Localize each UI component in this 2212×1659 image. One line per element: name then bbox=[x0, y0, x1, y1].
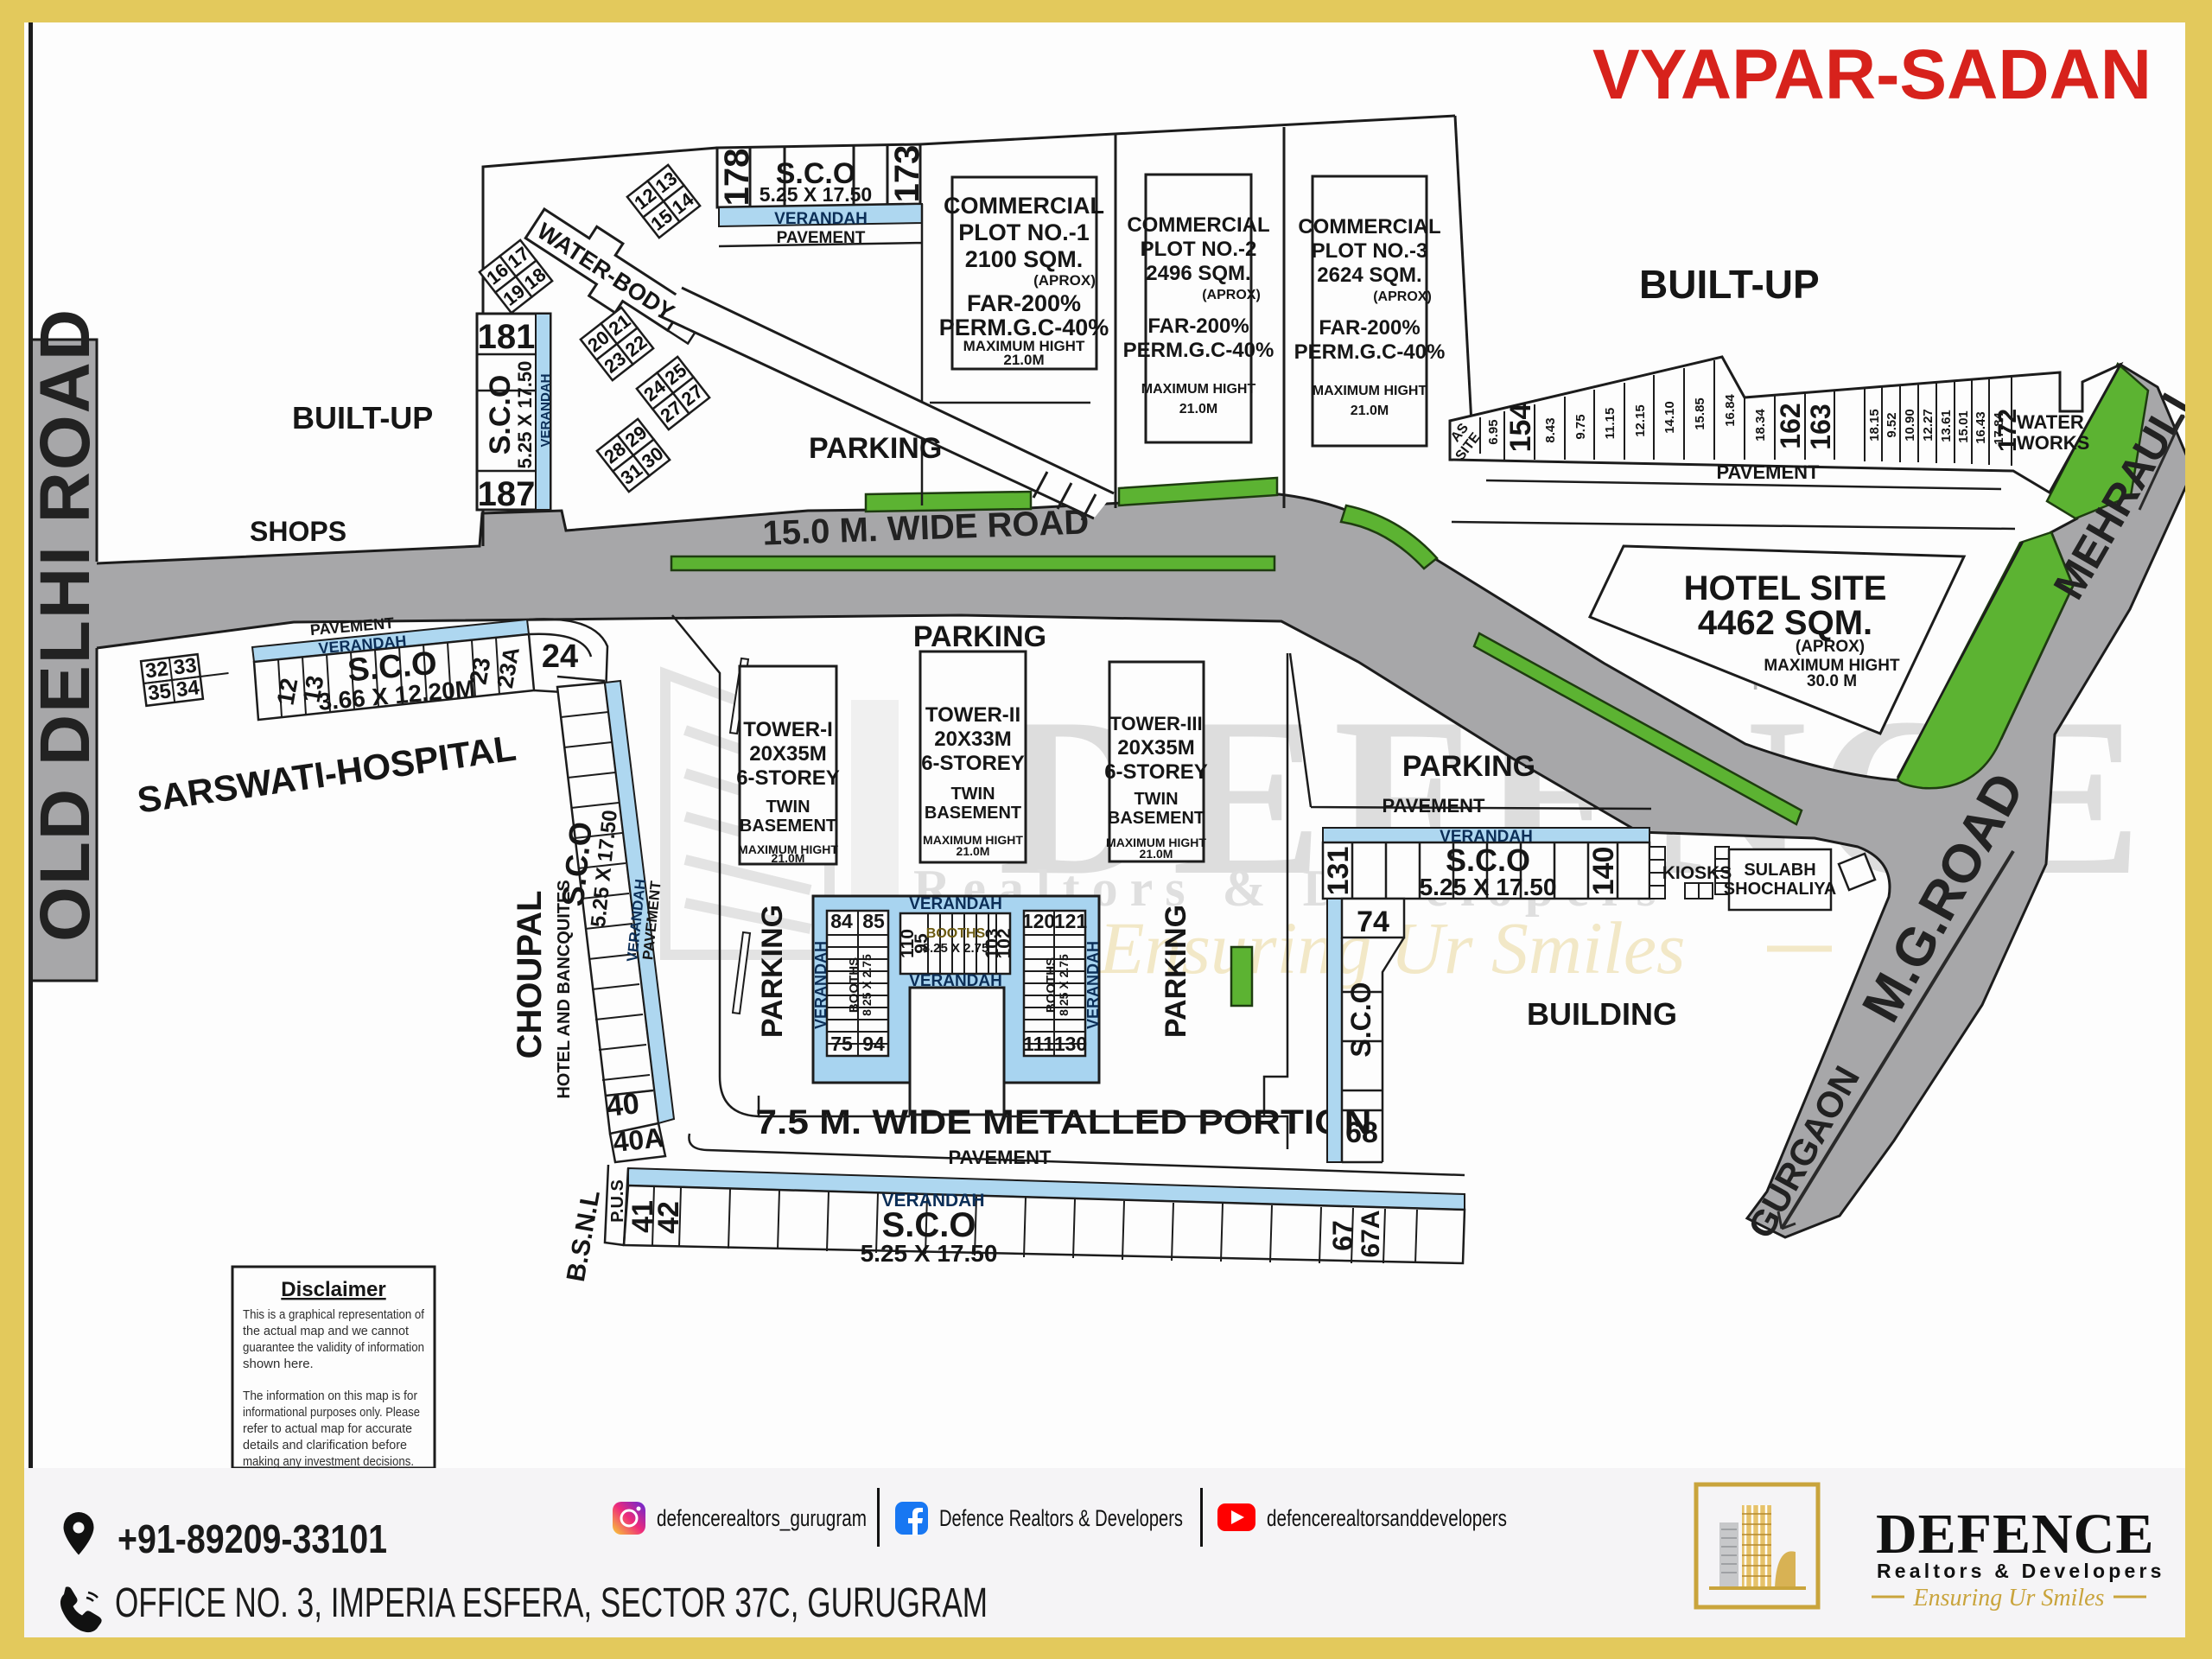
svg-text:21.0M: 21.0M bbox=[1003, 352, 1044, 368]
svg-text:Defence Realtors & Developers: Defence Realtors & Developers bbox=[939, 1505, 1183, 1531]
svg-text:shown here.: shown here. bbox=[243, 1357, 314, 1371]
svg-text:102: 102 bbox=[995, 928, 1014, 958]
svg-text:18.34: 18.34 bbox=[1753, 409, 1768, 442]
svg-text:PARKING: PARKING bbox=[756, 905, 789, 1038]
svg-text:14.10: 14.10 bbox=[1662, 401, 1677, 434]
svg-text:BASEMENT: BASEMENT bbox=[740, 817, 836, 836]
svg-text:(APROX): (APROX) bbox=[1796, 638, 1865, 656]
svg-text:18.15: 18.15 bbox=[1867, 409, 1882, 442]
svg-text:SHOPS: SHOPS bbox=[250, 516, 346, 547]
svg-text:154: 154 bbox=[1504, 404, 1537, 453]
svg-text:140: 140 bbox=[1587, 847, 1620, 896]
svg-text:COMMERCIAL: COMMERCIAL bbox=[944, 193, 1104, 219]
svg-text:PAVEMENT: PAVEMENT bbox=[1382, 795, 1486, 817]
svg-text:12.15: 12.15 bbox=[1633, 404, 1648, 437]
svg-text:40A: 40A bbox=[612, 1122, 665, 1158]
svg-text:162: 162 bbox=[1775, 403, 1806, 448]
svg-text:VERANDAH: VERANDAH bbox=[774, 210, 868, 228]
svg-text:PERM.G.C-40%: PERM.G.C-40% bbox=[939, 315, 1109, 340]
svg-text:120: 120 bbox=[1022, 910, 1055, 932]
svg-text:34: 34 bbox=[175, 676, 200, 702]
svg-text:5.25 X 17.50: 5.25 X 17.50 bbox=[1420, 874, 1557, 900]
svg-text:187: 187 bbox=[478, 475, 536, 513]
svg-text:TWIN: TWIN bbox=[1134, 790, 1178, 809]
svg-text:VERANDAH: VERANDAH bbox=[538, 373, 553, 447]
svg-text:informational purposes only. P: informational purposes only. Please bbox=[243, 1405, 420, 1420]
svg-text:FAR-200%: FAR-200% bbox=[967, 290, 1081, 316]
svg-text:121: 121 bbox=[1054, 910, 1088, 932]
svg-text:6.95: 6.95 bbox=[1486, 419, 1501, 444]
svg-text:94: 94 bbox=[862, 1033, 885, 1055]
svg-text:5.25 X 17.50: 5.25 X 17.50 bbox=[514, 361, 536, 469]
svg-text:FAR-200%: FAR-200% bbox=[1319, 316, 1420, 340]
svg-text:defencerealtorsanddevelopers: defencerealtorsanddevelopers bbox=[1267, 1505, 1507, 1531]
svg-text:TOWER-II: TOWER-II bbox=[925, 703, 1020, 727]
svg-text:PAVEMENT: PAVEMENT bbox=[1717, 461, 1821, 483]
svg-text:The information on this map is: The information on this map is for bbox=[243, 1389, 417, 1403]
svg-text:BUILDING: BUILDING bbox=[1527, 996, 1677, 1032]
svg-text:2100 SQM.: 2100 SQM. bbox=[965, 246, 1084, 272]
svg-text:Realtors & Developers: Realtors & Developers bbox=[1877, 1560, 2165, 1582]
svg-text:21.0M: 21.0M bbox=[1140, 847, 1173, 861]
svg-text:SHOCHALIYA: SHOCHALIYA bbox=[1724, 880, 1836, 899]
svg-text:8.43: 8.43 bbox=[1543, 417, 1558, 442]
svg-text:TWIN: TWIN bbox=[766, 798, 810, 817]
svg-text:the actual map and we cannot: the actual map and we cannot bbox=[243, 1324, 410, 1338]
svg-text:PAVEMENT: PAVEMENT bbox=[777, 229, 866, 247]
svg-text:PLOT NO.-1: PLOT NO.-1 bbox=[958, 219, 1090, 245]
svg-text:DEFENCE: DEFENCE bbox=[1876, 1503, 2154, 1566]
svg-text:BASEMENT: BASEMENT bbox=[1108, 809, 1205, 828]
svg-text:S.C.O: S.C.O bbox=[882, 1206, 976, 1244]
svg-text:PAVEMENT: PAVEMENT bbox=[949, 1147, 1052, 1168]
svg-text:CHOUPAL: CHOUPAL bbox=[511, 891, 549, 1059]
svg-text:35: 35 bbox=[147, 679, 173, 705]
svg-text:HOTEL SITE: HOTEL SITE bbox=[1684, 569, 1887, 607]
svg-text:10.90: 10.90 bbox=[1903, 409, 1917, 442]
svg-text:COMMERCIAL: COMMERCIAL bbox=[1298, 215, 1440, 238]
svg-text:15.85: 15.85 bbox=[1693, 397, 1707, 430]
svg-text:21.0M: 21.0M bbox=[1179, 402, 1217, 416]
svg-text:6-STOREY: 6-STOREY bbox=[1104, 760, 1208, 784]
svg-text:178: 178 bbox=[718, 149, 756, 207]
svg-text:KIOSKS: KIOSKS bbox=[1662, 863, 1732, 883]
svg-text:67: 67 bbox=[1327, 1220, 1358, 1251]
svg-text:6-STOREY: 6-STOREY bbox=[736, 766, 840, 790]
svg-text:13.61: 13.61 bbox=[1939, 410, 1954, 442]
svg-text:details and clarification befo: details and clarification before bbox=[243, 1438, 407, 1452]
svg-text:111: 111 bbox=[1023, 1033, 1054, 1055]
svg-text:20X35M: 20X35M bbox=[749, 742, 826, 766]
svg-text:15.01: 15.01 bbox=[1956, 410, 1971, 443]
svg-text:TOWER-I: TOWER-I bbox=[743, 718, 833, 741]
svg-text:WATER: WATER bbox=[2017, 411, 2084, 433]
svg-text:5.25 X 17.50: 5.25 X 17.50 bbox=[760, 183, 872, 206]
svg-text:PERM.G.C-40%: PERM.G.C-40% bbox=[1294, 340, 1446, 364]
svg-text:8.25 X 2.75: 8.25 X 2.75 bbox=[860, 954, 874, 1016]
svg-text:85: 85 bbox=[862, 910, 885, 932]
svg-text:12: 12 bbox=[271, 676, 302, 707]
svg-text:WORKS: WORKS bbox=[2017, 432, 2089, 454]
svg-text:74: 74 bbox=[1357, 906, 1389, 938]
svg-text:FAR-200%: FAR-200% bbox=[1147, 315, 1249, 338]
svg-text:Disclaimer: Disclaimer bbox=[281, 1278, 385, 1301]
svg-text:163: 163 bbox=[1805, 404, 1836, 449]
svg-text:MAXIMUM HIGHT: MAXIMUM HIGHT bbox=[1313, 384, 1427, 398]
svg-text:16.84: 16.84 bbox=[1723, 394, 1738, 427]
svg-text:TOWER-III: TOWER-III bbox=[1109, 713, 1202, 734]
svg-text:(APROX): (APROX) bbox=[1033, 272, 1096, 289]
svg-text:75: 75 bbox=[830, 1033, 853, 1055]
svg-text:Ensuring Ur Smiles: Ensuring Ur Smiles bbox=[1913, 1585, 2105, 1611]
svg-text:20X35M: 20X35M bbox=[1117, 736, 1194, 760]
svg-text:PARKING: PARKING bbox=[1160, 905, 1192, 1038]
svg-text:COMMERCIAL: COMMERCIAL bbox=[1127, 213, 1269, 237]
svg-text:VERANDAH: VERANDAH bbox=[1084, 941, 1102, 1029]
svg-text:BUILT-UP: BUILT-UP bbox=[292, 400, 433, 435]
svg-text:BUILT-UP: BUILT-UP bbox=[1639, 262, 1820, 307]
svg-text:VERANDAH: VERANDAH bbox=[909, 972, 1002, 990]
svg-text:67A: 67A bbox=[1357, 1210, 1385, 1257]
svg-text:VYAPAR-SADAN: VYAPAR-SADAN bbox=[1592, 35, 2152, 114]
svg-text:PLOT NO.-3: PLOT NO.-3 bbox=[1312, 239, 1428, 263]
svg-text:24: 24 bbox=[542, 639, 578, 675]
svg-text:6-STOREY: 6-STOREY bbox=[921, 752, 1025, 775]
svg-text:S.C.O: S.C.O bbox=[1345, 982, 1376, 1057]
svg-text:2624 SQM.: 2624 SQM. bbox=[1317, 264, 1421, 287]
svg-text:P.U.S: P.U.S bbox=[608, 1179, 627, 1223]
svg-text:This is a graphical representa: This is a graphical representation of bbox=[243, 1307, 425, 1322]
svg-text:95: 95 bbox=[912, 933, 931, 954]
svg-text:S.C.O: S.C.O bbox=[484, 375, 517, 455]
svg-text:making any investment decision: making any investment decisions. bbox=[243, 1454, 414, 1469]
svg-text:21.0M: 21.0M bbox=[1351, 404, 1389, 418]
svg-text:11.15: 11.15 bbox=[1603, 408, 1618, 440]
svg-text:OLD DELHI ROAD: OLD DELHI ROAD bbox=[26, 308, 105, 942]
svg-text:173: 173 bbox=[888, 145, 926, 203]
svg-text:8.25 X 2.75: 8.25 X 2.75 bbox=[1057, 954, 1071, 1016]
svg-text:12.27: 12.27 bbox=[1921, 409, 1935, 442]
svg-text:42: 42 bbox=[652, 1201, 685, 1234]
svg-text:(APROX): (APROX) bbox=[1202, 288, 1261, 302]
svg-text:21.0M: 21.0M bbox=[772, 851, 805, 865]
svg-text:2496 SQM.: 2496 SQM. bbox=[1146, 262, 1250, 285]
svg-text:9.52: 9.52 bbox=[1885, 412, 1899, 437]
svg-text:131: 131 bbox=[1322, 847, 1355, 896]
svg-text:HOTEL AND BANCQUITES: HOTEL AND BANCQUITES bbox=[555, 880, 574, 1098]
svg-text:130: 130 bbox=[1054, 1033, 1087, 1055]
svg-text:PARKING: PARKING bbox=[1402, 750, 1535, 783]
svg-text:OFFICE NO. 3, IMPERIA ESFERA,: OFFICE NO. 3, IMPERIA ESFERA, SECTOR 37C… bbox=[115, 1580, 988, 1626]
svg-text:40: 40 bbox=[605, 1087, 641, 1123]
svg-text:MAXIMUM HIGHT: MAXIMUM HIGHT bbox=[1141, 382, 1256, 397]
svg-text:VERANDAH: VERANDAH bbox=[909, 895, 1002, 913]
svg-text:16.43: 16.43 bbox=[1974, 411, 1988, 444]
svg-text:5.25 X 17.50: 5.25 X 17.50 bbox=[861, 1240, 998, 1267]
svg-text:PARKING: PARKING bbox=[809, 432, 942, 465]
svg-text:30.0 M: 30.0 M bbox=[1807, 672, 1857, 690]
svg-text:guarantee the validity of info: guarantee the validity of information bbox=[243, 1340, 424, 1355]
svg-text:21.0M: 21.0M bbox=[957, 844, 990, 858]
svg-text:181: 181 bbox=[478, 318, 536, 356]
svg-text:7.5 M. WIDE METALLED PORTION: 7.5 M. WIDE METALLED PORTION bbox=[756, 1103, 1372, 1141]
svg-text:PERM.G.C-40%: PERM.G.C-40% bbox=[1123, 339, 1274, 362]
svg-text:S.C.O: S.C.O bbox=[1446, 842, 1530, 878]
svg-text:BOOTHS: BOOTHS bbox=[926, 926, 986, 941]
svg-text:VERANDAH: VERANDAH bbox=[812, 941, 829, 1029]
svg-text:+91-89209-33101: +91-89209-33101 bbox=[118, 1516, 387, 1561]
svg-text:13: 13 bbox=[297, 673, 328, 704]
svg-text:4462 SQM.: 4462 SQM. bbox=[1698, 604, 1872, 642]
svg-text:PLOT NO.-2: PLOT NO.-2 bbox=[1141, 238, 1257, 261]
svg-text:20X33M: 20X33M bbox=[934, 728, 1011, 751]
svg-text:SULABH: SULABH bbox=[1744, 861, 1815, 880]
svg-text:(APROX): (APROX) bbox=[1373, 289, 1432, 304]
svg-text:TWIN: TWIN bbox=[950, 785, 995, 804]
svg-text:9.75: 9.75 bbox=[1573, 414, 1588, 439]
svg-text:84: 84 bbox=[830, 910, 853, 932]
svg-text:defencerealtors_gurugram: defencerealtors_gurugram bbox=[657, 1505, 867, 1531]
svg-text:68: 68 bbox=[1345, 1116, 1378, 1149]
svg-text:8.25 X 2.75: 8.25 X 2.75 bbox=[923, 941, 989, 956]
svg-text:BASEMENT: BASEMENT bbox=[925, 804, 1021, 823]
svg-text:PARKING: PARKING bbox=[913, 620, 1046, 653]
svg-text:refer to actual map for accura: refer to actual map for accurate bbox=[243, 1421, 412, 1436]
svg-text:23: 23 bbox=[464, 655, 495, 686]
